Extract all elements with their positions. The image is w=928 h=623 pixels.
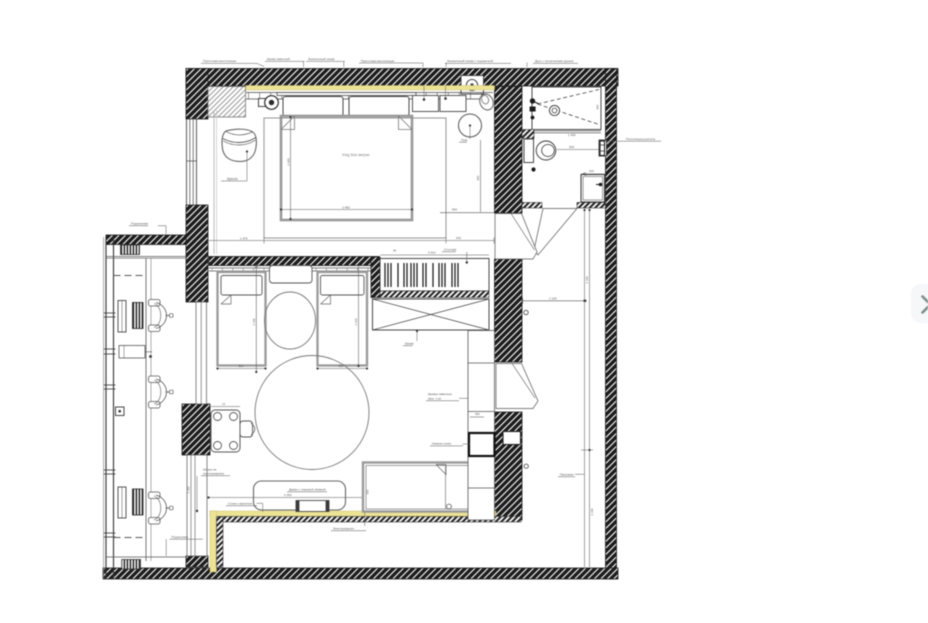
svg-text:600: 600 [366, 489, 370, 494]
svg-text:950: 950 [452, 208, 457, 212]
svg-text:1 400: 1 400 [568, 133, 576, 137]
svg-text:2 450: 2 450 [342, 205, 350, 209]
svg-text:Приточная вентиляция: Приточная вентиляция [203, 59, 236, 63]
svg-text:Зеркальный шкаф: Зеркальный шкаф [308, 57, 335, 61]
svg-text:1 400: 1 400 [565, 82, 573, 86]
svg-text:905: 905 [476, 175, 480, 180]
svg-text:800: 800 [239, 364, 244, 368]
svg-text:300: 300 [569, 145, 574, 149]
svg-text:Стена с кирпичом: Стена с кирпичом [228, 502, 252, 506]
svg-text:342: 342 [456, 236, 461, 240]
svg-text:тХ: тХ [222, 402, 225, 406]
svg-text:Кресло: Кресло [227, 177, 238, 181]
svg-text:King Size матрас: King Size матрас [342, 153, 370, 157]
svg-text:Подоконник: Подоконник [131, 222, 149, 226]
svg-text:1 475: 1 475 [240, 236, 248, 240]
svg-text:Душ с тропическим душем: Душ с тропическим душем [535, 59, 573, 63]
svg-text:Электрокарниз: Электрокарниз [333, 527, 355, 531]
svg-text:2 400: 2 400 [287, 158, 291, 166]
svg-text:2 350: 2 350 [284, 493, 292, 497]
svg-text:1 610: 1 610 [354, 318, 358, 326]
svg-text:Зеркальный шкаф с подсветкой: Зеркальный шкаф с подсветкой [447, 59, 493, 63]
svg-text:Подоконник: Подоконник [172, 535, 189, 539]
svg-text:электрокарнизе: электрокарнизе [203, 472, 225, 476]
svg-text:310: 310 [589, 169, 594, 173]
svg-text:1 150: 1 150 [187, 486, 191, 493]
svg-text:Диван с тканевой обивкой: Диван с тканевой обивкой [289, 488, 326, 492]
svg-text:(выс. 1 м): (выс. 1 м) [428, 397, 441, 401]
svg-text:Шкаф навесной: Шкаф навесной [267, 57, 290, 61]
svg-text:2 012: 2 012 [428, 251, 436, 255]
svg-text:Приточная вентиляция: Приточная вентиляция [361, 59, 394, 63]
svg-text:Шкафы навесные: Шкафы навесные [428, 392, 452, 396]
svg-text:2 100: 2 100 [252, 318, 256, 326]
svg-text:Прихожая: Прихожая [560, 473, 574, 477]
svg-text:36: 36 [393, 249, 397, 253]
svg-text:2 100: 2 100 [585, 276, 589, 284]
svg-text:Нижние полки: Нижние полки [432, 442, 451, 446]
svg-text:Полотенцесушитель: Полотенцесушитель [626, 137, 656, 141]
svg-text:800: 800 [339, 364, 344, 368]
svg-text:1 100: 1 100 [549, 296, 557, 300]
svg-text:Пуф: Пуф [461, 138, 468, 142]
svg-text:Шкаф: Шкаф [405, 342, 414, 346]
svg-text:2 190: 2 190 [590, 508, 594, 516]
svg-text:400: 400 [475, 412, 480, 416]
svg-text:Стеллаж: Стеллаж [444, 248, 456, 252]
svg-text:900: 900 [596, 104, 600, 109]
